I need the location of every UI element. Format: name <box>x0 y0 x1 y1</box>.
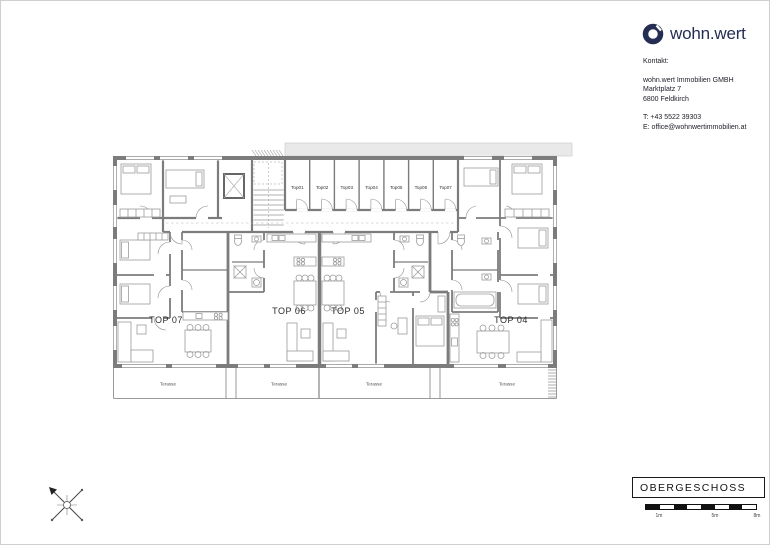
storage-label-6: Top06 <box>415 185 428 190</box>
apartment-label-top07: TOP 07 <box>149 315 183 325</box>
terrace-outline <box>114 368 557 399</box>
terrace-label-2: Terasse <box>271 382 288 387</box>
storage-label-1: Top01 <box>291 185 304 190</box>
terrace-label-4: Terasse <box>499 382 516 387</box>
terrace-stair-hatch <box>548 370 556 397</box>
brand-logo: wohn.wert <box>642 23 746 45</box>
contact-block: Kontakt: wohn.wert Immobilien GMBH Markt… <box>643 57 746 141</box>
storage-label-2: Top02 <box>316 185 329 190</box>
storage-label-3: Top03 <box>341 185 354 190</box>
drawing-sheet: TOP 07 TOP 06 TOP 05 TOP 04 Top01 Top02 … <box>0 0 770 545</box>
logo-text: wohn.wert <box>670 24 746 44</box>
storage-label-7: Top07 <box>439 185 452 190</box>
apartment-label-top06: TOP 06 <box>272 306 306 316</box>
storage-label-5: Top05 <box>390 185 403 190</box>
terrace-label-1: Terasse <box>160 382 177 387</box>
sheet-title-box: OBERGESCHOSS <box>632 477 765 498</box>
scale-bar <box>645 504 757 510</box>
entrance-hatch <box>252 150 283 156</box>
canopy-band <box>285 143 572 156</box>
contact-phone: T: +43 5522 39303 <box>643 113 746 123</box>
apartment-label-top04: TOP 04 <box>494 315 528 325</box>
apartment-label-top05: TOP 05 <box>331 306 365 316</box>
scale-label-5m: 5m <box>712 513 719 519</box>
contact-street: Marktplatz 7 <box>643 85 746 95</box>
wohnwert-ring-icon <box>642 23 664 45</box>
sheet-title: OBERGESCHOSS <box>640 482 746 494</box>
scale-label-8m: 8m <box>754 513 761 519</box>
elevator <box>224 174 244 198</box>
storage-label-4: Top04 <box>365 185 378 190</box>
contact-company: wohn.wert Immobilien GMBH <box>643 76 746 86</box>
contact-city: 6800 Feldkirch <box>643 95 746 105</box>
scale-label-1m: 1m <box>656 513 663 519</box>
contact-heading: Kontakt: <box>643 57 746 67</box>
contact-email: E: office@wohnwertimmobilien.at <box>643 123 746 133</box>
terrace-label-3: Terasse <box>366 382 383 387</box>
compass-icon <box>49 487 83 521</box>
